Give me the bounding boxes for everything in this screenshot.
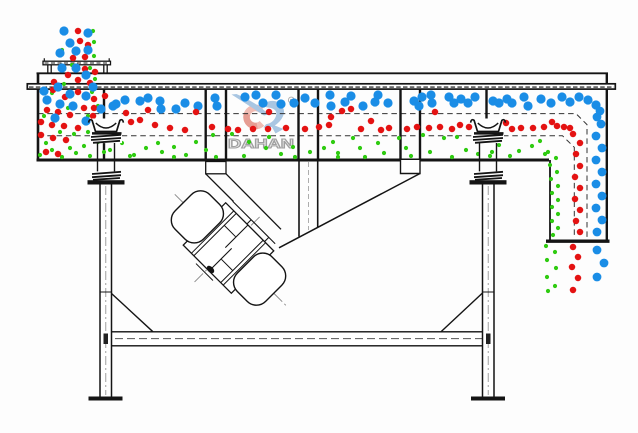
svg-text:DAHAN: DAHAN <box>228 136 294 151</box>
